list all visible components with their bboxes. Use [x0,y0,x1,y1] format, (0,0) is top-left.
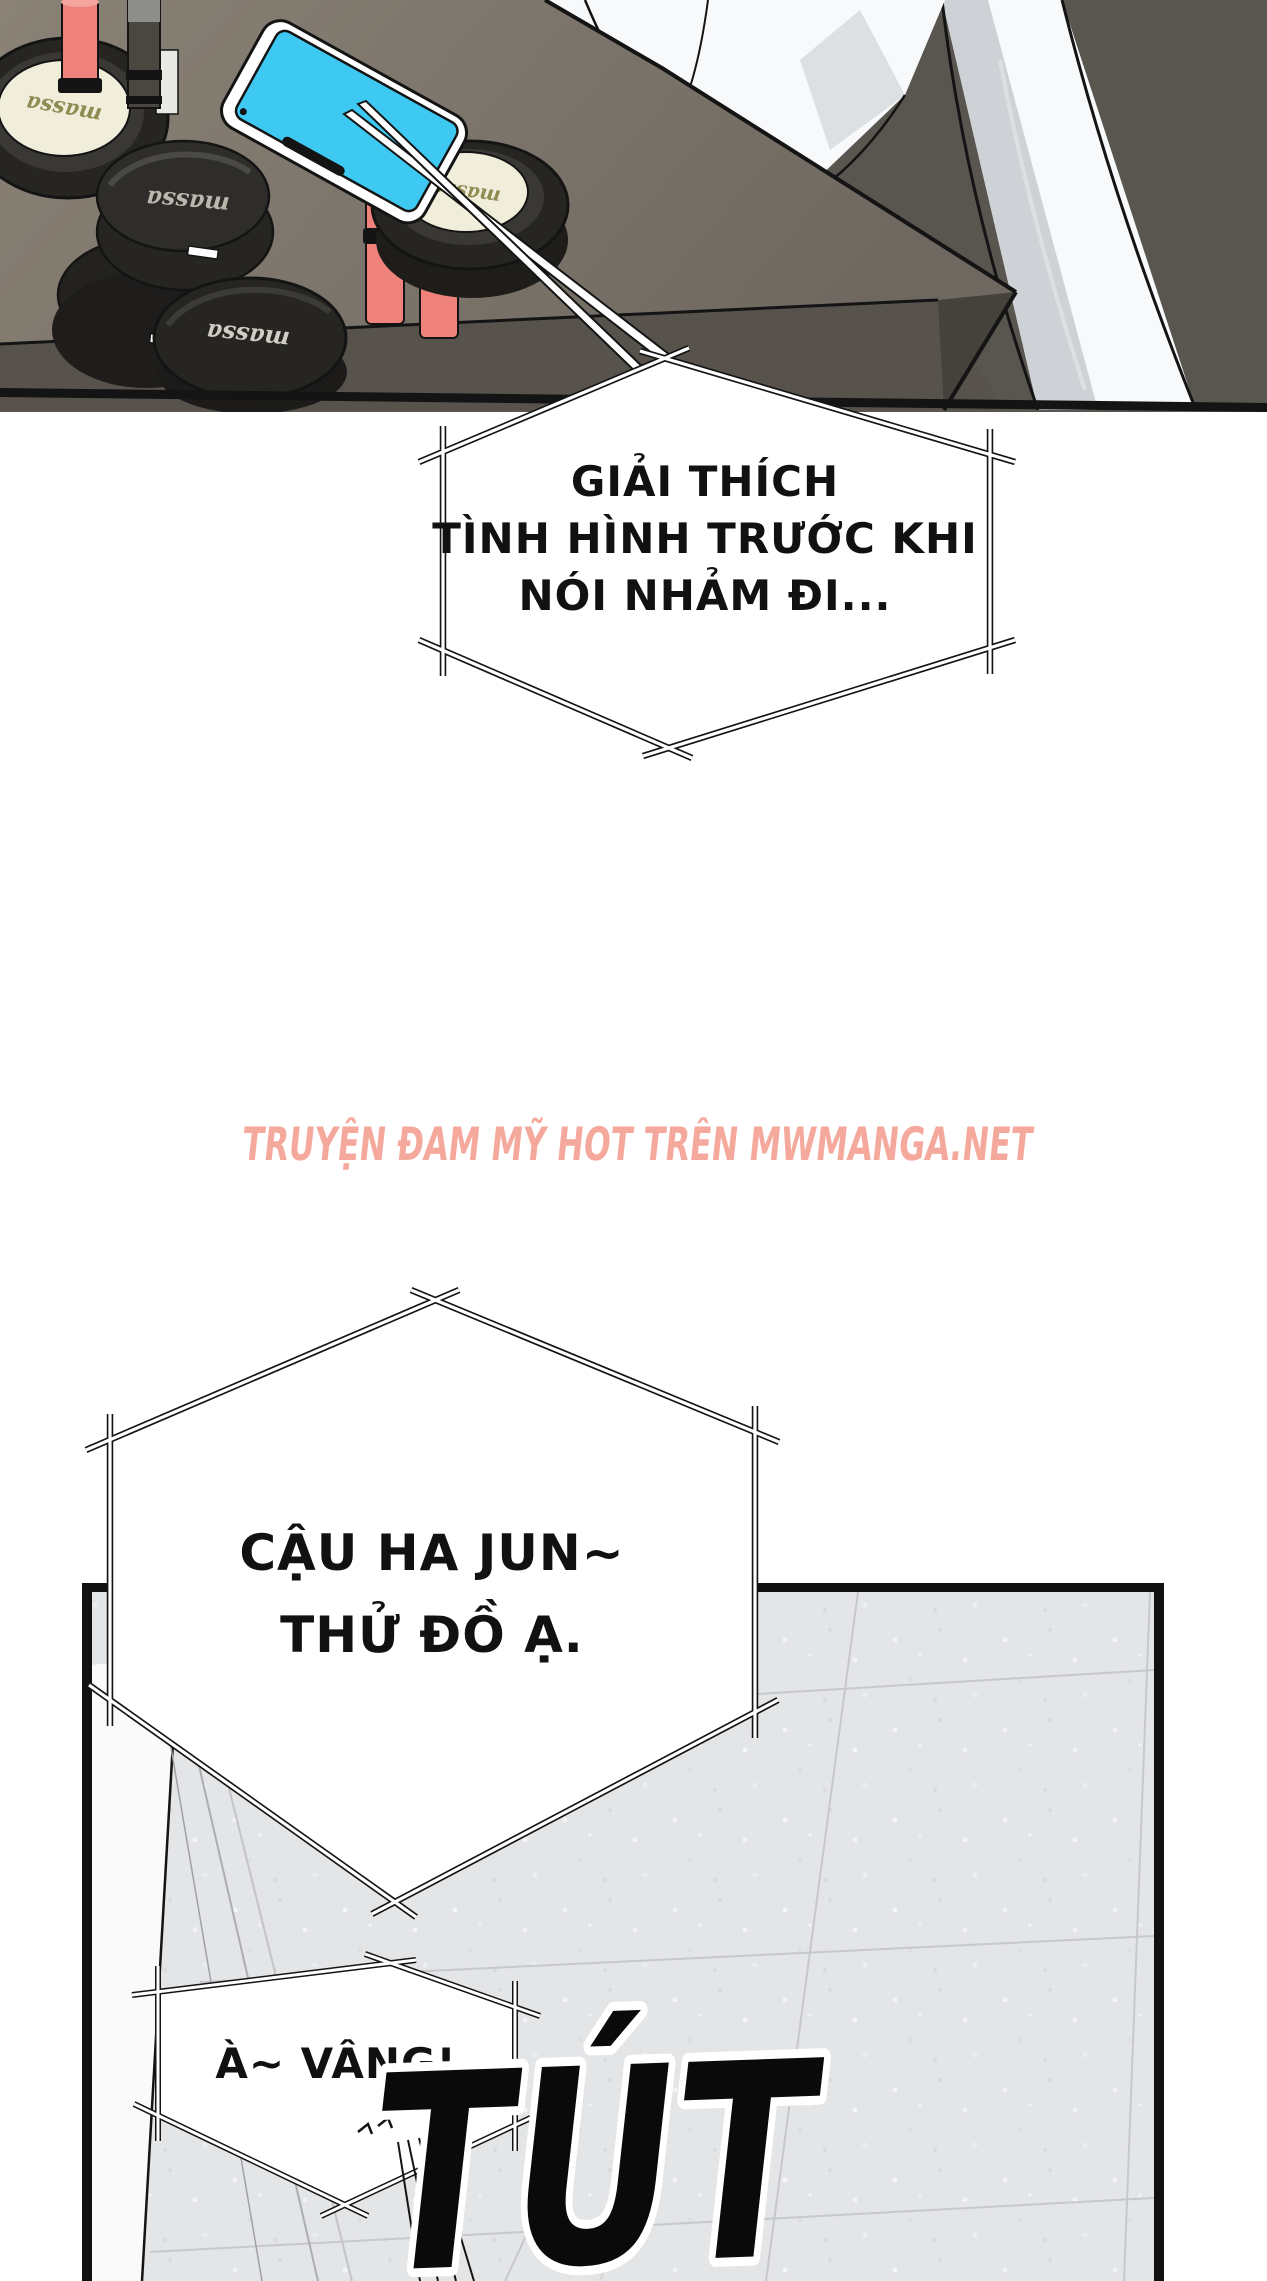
comic-page: massa massa [0,0,1267,2281]
watermark-text: TRUYỆN ĐAM MỸ HOT TRÊN MWMANGA.NET [240,1117,1036,1171]
bubble-2-line-1: CẬU HA JUN~ [239,1523,624,1582]
bubble-1-line-1: GIẢI THÍCH [571,452,839,506]
bubble-2-line-2: THỬ ĐỒ Ạ. [280,1599,584,1664]
bubble-1-line-2: TÌNH HÌNH TRƯỚC KHI [432,513,977,563]
vanity-scene: massa massa [0,0,1267,414]
lipstick-standing-pink [58,0,102,93]
sfx-tut: TÚT [369,2001,834,2281]
comic-art: massa massa [0,0,1267,2281]
bubble-1-line-3: NÓI NHẢM ĐI... [518,566,891,620]
panel-border-right [1154,1583,1164,2281]
